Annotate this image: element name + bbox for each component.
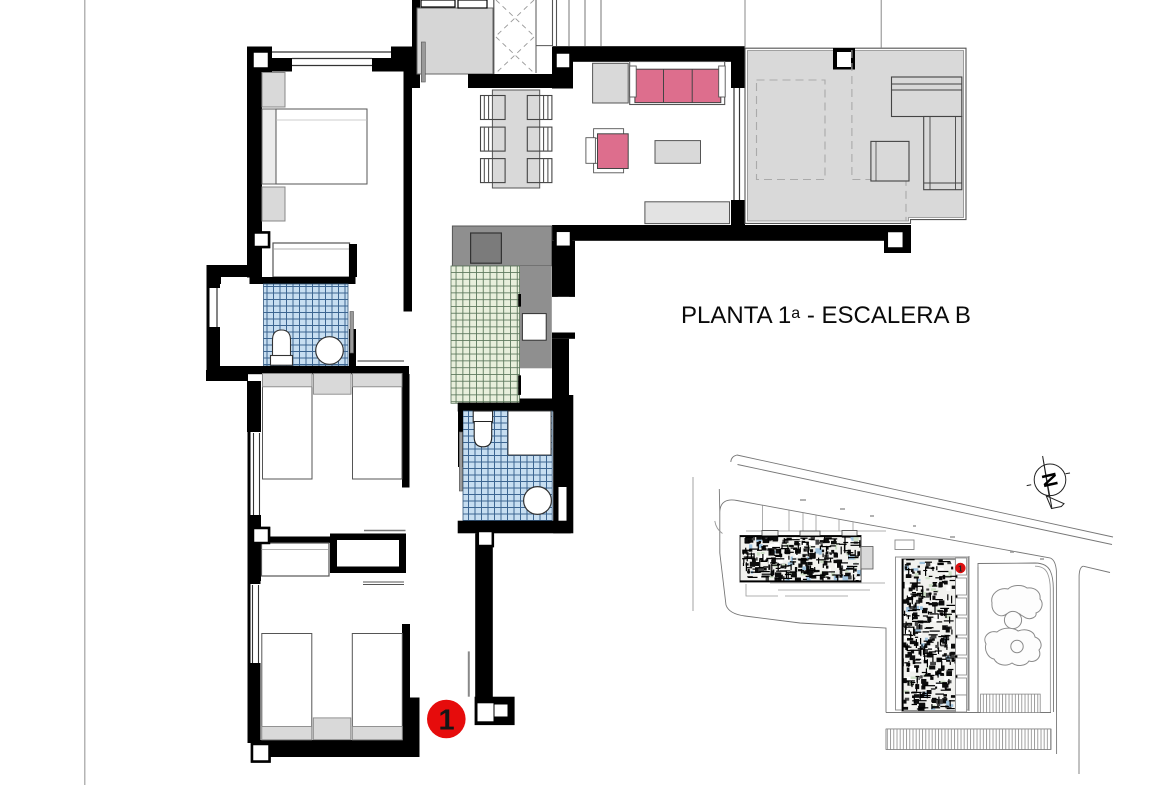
svg-text:1: 1: [439, 705, 455, 737]
svg-text:PLANTA 1a - ESCALERA B: PLANTA 1a - ESCALERA B: [681, 302, 971, 329]
svg-text:1: 1: [958, 564, 963, 573]
